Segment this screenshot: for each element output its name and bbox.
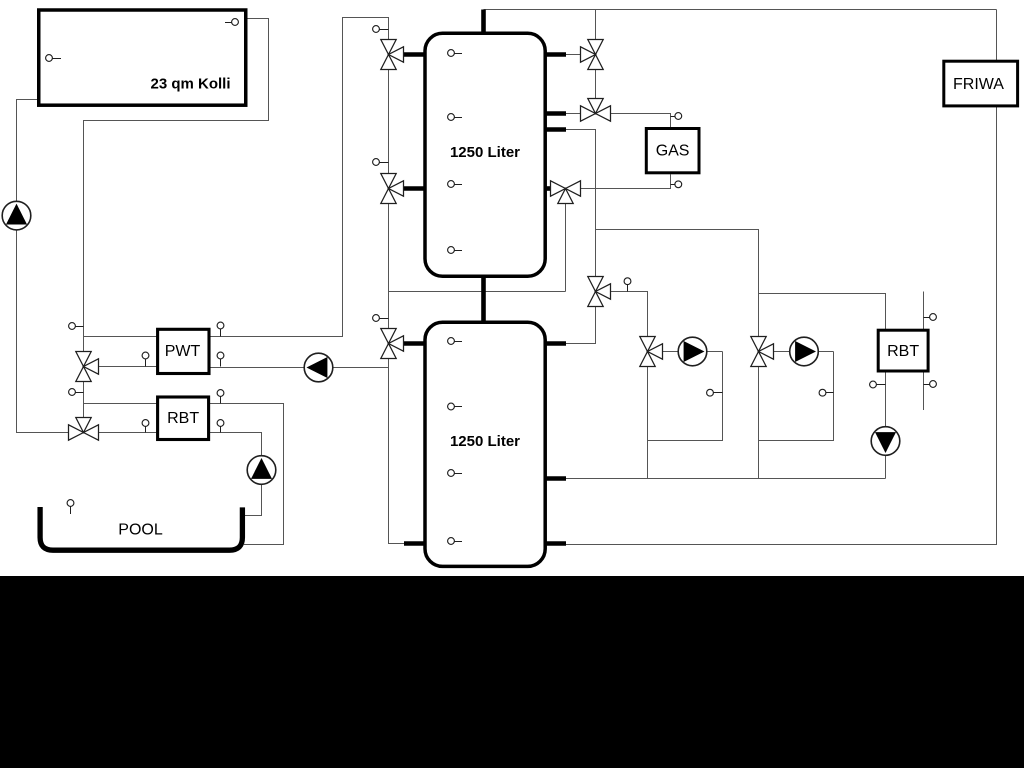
svg-text:1250 Liter: 1250 Liter	[450, 144, 520, 161]
svg-text:FRIWA: FRIWA	[953, 76, 1004, 93]
svg-text:1250 Liter: 1250 Liter	[450, 433, 520, 450]
svg-text:23 qm Kolli: 23 qm Kolli	[150, 76, 230, 93]
svg-text:POOL: POOL	[118, 522, 163, 539]
svg-text:GAS: GAS	[656, 143, 690, 160]
svg-text:PWT: PWT	[165, 343, 201, 360]
svg-text:RBT: RBT	[887, 343, 919, 360]
svg-text:RBT: RBT	[167, 410, 199, 427]
